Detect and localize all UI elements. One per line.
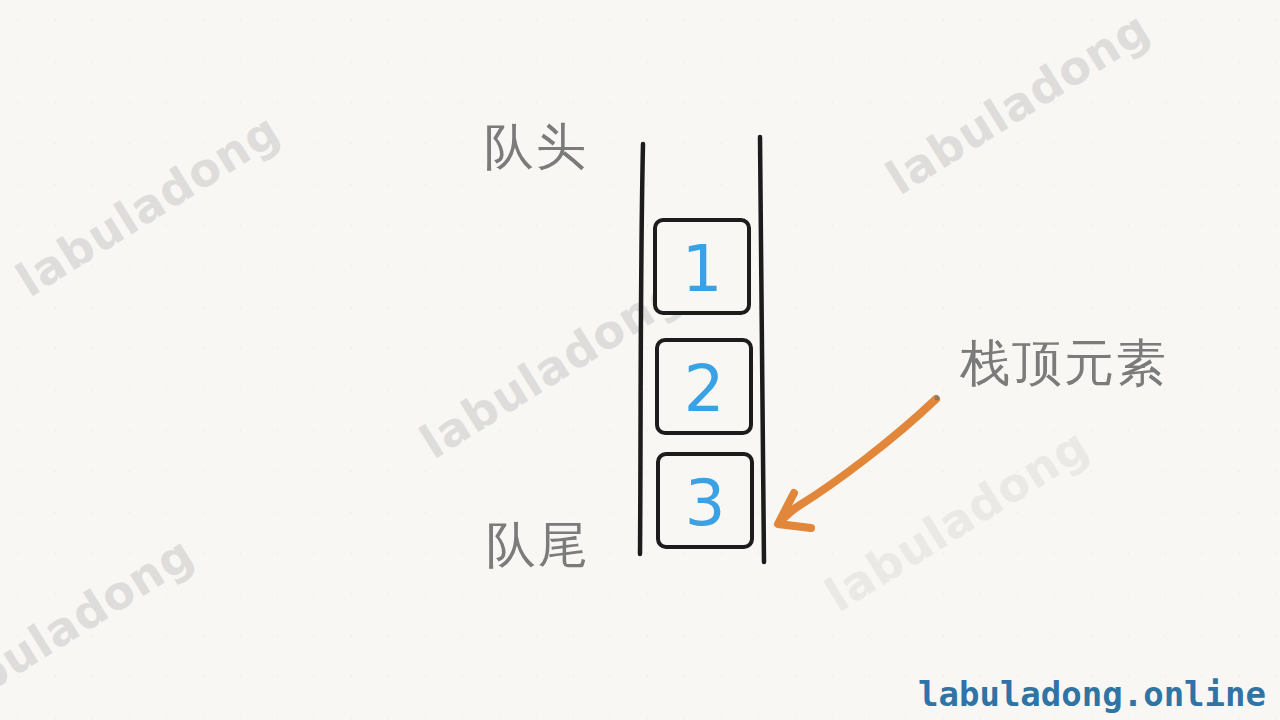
channel-right-wall xyxy=(760,137,764,562)
watermark-text: labuladong xyxy=(877,1,1160,206)
queue-cell: 2 xyxy=(655,338,753,435)
queue-tail-label: 队尾 xyxy=(486,518,590,573)
watermark-text: labuladong xyxy=(411,265,694,470)
watermark-text: labuladong xyxy=(7,103,290,308)
stack-top-arrow-shaft xyxy=(779,399,936,523)
queue-cell: 1 xyxy=(653,218,751,315)
site-url-watermark: labuladong.online xyxy=(918,674,1266,714)
queue-head-label: 队头 xyxy=(484,120,588,175)
stack-top-element-label: 栈顶元素 xyxy=(960,336,1168,391)
cell-value: 1 xyxy=(682,233,723,301)
cell-value: 3 xyxy=(685,467,726,535)
diagram-canvas: labuladong labuladong labuladong labulad… xyxy=(0,0,1280,720)
queue-cell: 3 xyxy=(656,452,754,549)
watermark-text: labuladong xyxy=(0,526,203,720)
cell-value: 2 xyxy=(684,353,725,421)
stack-top-arrowhead-icon xyxy=(778,493,811,528)
watermark-text: labuladong xyxy=(816,418,1099,623)
arrow-start-dot xyxy=(935,396,940,401)
channel-left-wall xyxy=(640,144,643,554)
